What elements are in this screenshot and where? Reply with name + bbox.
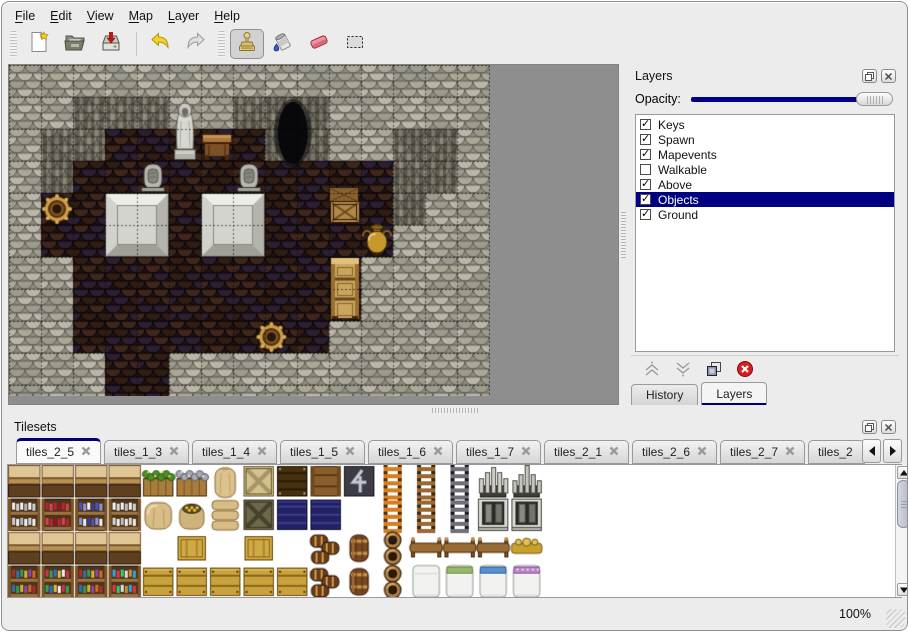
close-tab-icon[interactable]	[169, 445, 179, 459]
layer-label: Above	[658, 178, 692, 192]
undo-icon	[148, 30, 172, 59]
tileset-tab-label: tiles_1_5	[290, 445, 338, 459]
scrollbar-track[interactable]	[897, 480, 908, 582]
zoom-level: 100%	[839, 607, 871, 621]
menu-item-edit[interactable]: Edit	[50, 9, 72, 23]
layer-row-ground[interactable]: ✓Ground	[636, 207, 894, 222]
layer-label: Mapevents	[658, 148, 717, 162]
close-tab-icon[interactable]	[345, 445, 355, 459]
menu-item-view[interactable]: View	[87, 9, 114, 23]
layer-visibility-checkbox[interactable]: ✓	[640, 194, 651, 205]
statusbar: 100%	[2, 598, 907, 630]
redo-icon	[184, 30, 208, 59]
close-tilesets-button[interactable]	[881, 420, 896, 434]
vertical-splitter[interactable]	[619, 64, 628, 405]
tileset-tab-tiles_2_5[interactable]: tiles_2_5	[16, 438, 101, 464]
menu-item-mnemonic: E	[50, 9, 58, 23]
tileset-tab-tiles_2_1[interactable]: tiles_2_1	[544, 440, 629, 464]
layers-panel: Layers Opacity: ✓Keys✓Spawn✓MapeventsWal…	[628, 64, 903, 405]
map-canvas[interactable]	[9, 65, 490, 396]
close-tab-icon[interactable]	[81, 445, 91, 459]
close-tab-icon[interactable]	[785, 445, 795, 459]
close-panel-button[interactable]	[881, 69, 896, 83]
menu-item-label: ile	[23, 9, 36, 23]
menu-item-label: dit	[59, 9, 72, 23]
tileset-view	[7, 464, 902, 598]
opacity-label: Opacity:	[635, 92, 681, 106]
toolbar-drag-handle-2[interactable]	[218, 31, 225, 57]
opacity-slider-handle[interactable]	[856, 92, 893, 106]
layers-panel-titlebar: Layers	[628, 64, 902, 85]
tileset-tab-tiles_1_5[interactable]: tiles_1_5	[280, 440, 365, 464]
tileset-tab-tiles_1_4[interactable]: tiles_1_4	[192, 440, 277, 464]
layer-label: Objects	[658, 193, 699, 207]
save-map-button[interactable]	[94, 29, 128, 59]
main-area: Layers Opacity: ✓Keys✓Spawn✓MapeventsWal…	[2, 62, 907, 405]
menu-item-mnemonic: M	[129, 9, 139, 23]
splitter-handle-icon	[621, 212, 626, 258]
menu-item-label: elp	[223, 9, 240, 23]
duplicate-layer-button[interactable]	[703, 358, 725, 380]
layer-row-keys[interactable]: ✓Keys	[636, 117, 894, 132]
tileset-tab-label: tiles_1_3	[114, 445, 162, 459]
menu-item-label: iew	[95, 9, 114, 23]
map-editor-window: FileEditViewMapLayerHelp	[1, 1, 908, 631]
tileset-tab-label: tiles_2_5	[26, 445, 74, 459]
tilesets-panel: Tilesets tiles_2_5tiles_1_3tiles_1_4tile…	[2, 415, 907, 598]
menubar: FileEditViewMapLayerHelp	[2, 2, 907, 26]
tileset-tab-tiles_2_7[interactable]: tiles_2_7	[720, 440, 805, 464]
map-viewport	[8, 64, 619, 405]
horizontal-splitter[interactable]	[2, 405, 907, 415]
tileset-tab-tiles_2[interactable]: tiles_2	[808, 440, 865, 464]
tileset-tab-label: tiles_2_6	[642, 445, 690, 459]
layer-label: Spawn	[658, 133, 695, 147]
float-panel-button[interactable]	[862, 69, 877, 83]
scroll-tabs-left-button[interactable]	[862, 439, 881, 463]
layer-visibility-checkbox[interactable]: ✓	[640, 149, 651, 160]
toolbar-separator	[136, 32, 137, 56]
close-tab-icon[interactable]	[609, 445, 619, 459]
panel-tab-bar: HistoryLayers	[628, 382, 902, 405]
layer-list: ✓Keys✓Spawn✓MapeventsWalkable✓Above✓Obje…	[635, 114, 895, 352]
menu-item-mnemonic: F	[15, 9, 23, 23]
layer-visibility-checkbox[interactable]	[640, 164, 651, 175]
tileset-tab-tiles_1_7[interactable]: tiles_1_7	[456, 440, 541, 464]
resize-grip[interactable]	[886, 609, 905, 628]
layer-visibility-checkbox[interactable]: ✓	[640, 119, 651, 130]
open-map-button[interactable]	[58, 29, 92, 59]
tileset-tab-tiles_2_6[interactable]: tiles_2_6	[632, 440, 717, 464]
new-file-icon	[27, 30, 51, 59]
opacity-row: Opacity:	[628, 85, 902, 109]
layer-visibility-checkbox[interactable]: ✓	[640, 134, 651, 145]
menu-item-file[interactable]: File	[15, 9, 35, 23]
menu-item-mnemonic: L	[168, 9, 175, 23]
tileset-tab-label: tiles_1_4	[202, 445, 250, 459]
layer-row-objects[interactable]: ✓Objects	[636, 192, 894, 207]
new-map-button[interactable]	[22, 29, 56, 59]
tileset-tab-tiles_1_3[interactable]: tiles_1_3	[104, 440, 189, 464]
layer-toolbar	[631, 355, 899, 382]
layer-visibility-checkbox[interactable]: ✓	[640, 179, 651, 190]
delete-layer-button[interactable]	[734, 358, 756, 380]
move-layer-up-button[interactable]	[641, 358, 663, 380]
menu-item-label: ap	[139, 9, 153, 23]
tileset-tab-tiles_1_6[interactable]: tiles_1_6	[368, 440, 453, 464]
paint-bucket-icon	[271, 30, 295, 59]
tileset-tab-label: tiles_2_7	[730, 445, 778, 459]
move-layer-down-button[interactable]	[672, 358, 694, 380]
layer-row-above[interactable]: ✓Above	[636, 177, 894, 192]
layer-visibility-checkbox[interactable]: ✓	[640, 209, 651, 220]
menu-item-label: ayer	[175, 9, 199, 23]
close-tab-icon[interactable]	[697, 445, 707, 459]
open-folder-icon	[63, 30, 87, 59]
tileset-scrollbar	[895, 465, 908, 597]
save-icon	[99, 30, 123, 59]
fill-tool-button[interactable]	[266, 29, 300, 59]
stamp-icon	[235, 30, 259, 59]
layer-row-spawn[interactable]: ✓Spawn	[636, 132, 894, 147]
layer-label: Ground	[658, 208, 698, 222]
eraser-icon	[307, 30, 331, 59]
close-tab-icon[interactable]	[521, 445, 531, 459]
stamp-tool-button[interactable]	[230, 29, 264, 59]
toolbar	[2, 26, 907, 62]
tileset-canvas[interactable]	[8, 465, 895, 597]
layer-label: Walkable	[658, 163, 707, 177]
scrollbar-thumb[interactable]	[897, 480, 908, 528]
splitter-handle-icon	[432, 408, 478, 413]
menu-item-map[interactable]: Map	[129, 9, 153, 23]
float-tilesets-button[interactable]	[862, 420, 877, 434]
tileset-tab-label: tiles_1_7	[466, 445, 514, 459]
close-tab-icon[interactable]	[433, 445, 443, 459]
tileset-tab-label: tiles_1_6	[378, 445, 426, 459]
tileset-tab-label: tiles_2	[818, 445, 853, 459]
redo-button[interactable]	[179, 29, 213, 59]
opacity-slider[interactable]	[689, 91, 893, 107]
menu-item-help[interactable]: Help	[214, 9, 240, 23]
undo-button[interactable]	[143, 29, 177, 59]
scroll-tabs-right-button[interactable]	[883, 439, 902, 463]
menu-item-mnemonic: V	[87, 9, 95, 23]
scroll-down-button[interactable]	[897, 583, 908, 596]
layer-row-walkable[interactable]: Walkable	[636, 162, 894, 177]
tileset-tab-label: tiles_2_1	[554, 445, 602, 459]
tab-layers[interactable]: Layers	[701, 382, 767, 405]
toolbar-drag-handle[interactable]	[10, 31, 17, 57]
menu-item-layer[interactable]: Layer	[168, 9, 199, 23]
tilesets-panel-title: Tilesets	[14, 420, 858, 434]
tab-scroll-arrows	[860, 439, 902, 463]
select-tool-button[interactable]	[338, 29, 372, 59]
close-tab-icon[interactable]	[257, 445, 267, 459]
layer-row-mapevents[interactable]: ✓Mapevents	[636, 147, 894, 162]
scroll-up-button[interactable]	[897, 466, 908, 479]
tileset-tab-bar: tiles_2_5tiles_1_3tiles_1_4tiles_1_5tile…	[7, 436, 902, 464]
tilesets-panel-titlebar: Tilesets	[7, 415, 902, 436]
layer-label: Keys	[658, 118, 685, 132]
menu-item-mnemonic: H	[214, 9, 223, 23]
eraser-tool-button[interactable]	[302, 29, 336, 59]
tab-history[interactable]: History	[631, 384, 698, 405]
selection-marquee-icon	[343, 30, 367, 59]
layers-panel-title: Layers	[635, 69, 858, 83]
